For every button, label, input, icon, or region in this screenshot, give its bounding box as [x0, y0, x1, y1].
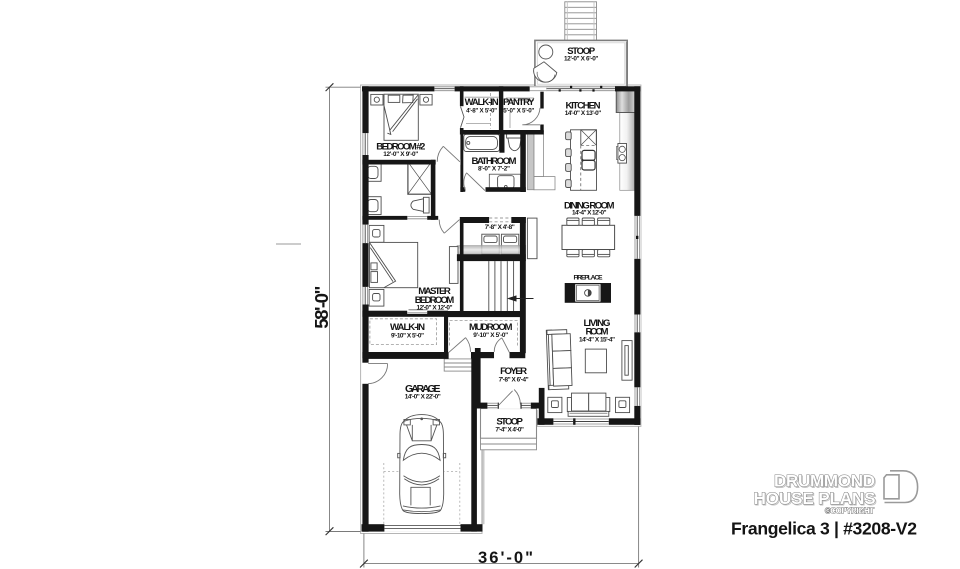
svg-text:5'-0" X 5'-0": 5'-0" X 5'-0": [503, 107, 534, 114]
svg-text:FIREPLACE: FIREPLACE: [574, 275, 604, 282]
svg-text:7'-8" X 4'-8": 7'-8" X 4'-8": [485, 224, 515, 231]
svg-text:36'-0": 36'-0": [478, 548, 533, 567]
svg-text:7'-8" X 6'-4": 7'-8" X 6'-4": [499, 377, 529, 384]
svg-text:14'-4" X 12'-0": 14'-4" X 12'-0": [572, 209, 607, 216]
svg-text:9'-10" X 5'-0": 9'-10" X 5'-0": [473, 332, 508, 339]
svg-text:12'-0" X 6'-0": 12'-0" X 6'-0": [564, 55, 599, 62]
svg-text:WALK-IN: WALK-IN: [390, 322, 425, 333]
svg-text:58'-0": 58'-0": [311, 286, 332, 329]
svg-text:HOUSE PLANS: HOUSE PLANS: [754, 489, 876, 508]
svg-text:4'-8" X 5'-0": 4'-8" X 5'-0": [466, 107, 497, 114]
svg-text:12'-0" X 12'-0": 12'-0" X 12'-0": [417, 304, 453, 311]
svg-text:9'-10" X 5'-0": 9'-10" X 5'-0": [391, 332, 424, 339]
svg-text:14'-0" X 13'-0": 14'-0" X 13'-0": [565, 110, 602, 117]
svg-text:8'-0" X 7'-2": 8'-0" X 7'-2": [478, 166, 510, 173]
svg-text:STOOP: STOOP: [567, 45, 595, 56]
svg-text:14'-4" X 15'-4": 14'-4" X 15'-4": [579, 337, 615, 344]
svg-text:DRUMMOND: DRUMMOND: [774, 471, 875, 490]
svg-text:FOYER: FOYER: [500, 366, 527, 377]
svg-text:12'-0" X 9'-0": 12'-0" X 9'-0": [383, 151, 418, 158]
svg-text:PANTRY: PANTRY: [503, 96, 535, 107]
svg-text:Frangelica 3 | #3208-V2: Frangelica 3 | #3208-V2: [731, 519, 917, 539]
svg-text:©COPYRIGHT: ©COPYRIGHT: [825, 507, 874, 516]
svg-text:WALK-IN: WALK-IN: [465, 96, 499, 107]
svg-text:7'-4" X 4'-0": 7'-4" X 4'-0": [495, 427, 523, 434]
svg-text:14'-0" X 22'-0": 14'-0" X 22'-0": [405, 394, 441, 401]
